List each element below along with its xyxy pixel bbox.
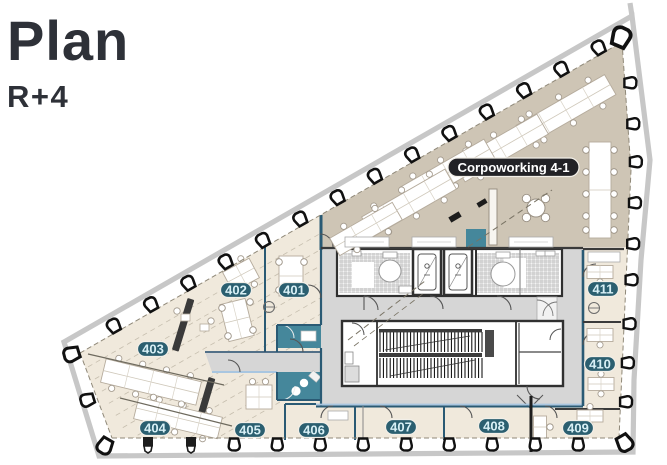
svg-text:403: 403 [142, 342, 164, 357]
svg-text:R+4: R+4 [7, 79, 69, 114]
svg-text:Plan: Plan [7, 9, 129, 72]
svg-text:411: 411 [593, 282, 614, 297]
svg-text:407: 407 [390, 420, 412, 435]
svg-text:410: 410 [589, 357, 611, 372]
svg-text:404: 404 [144, 421, 166, 436]
svg-text:Corpoworking 4-1: Corpoworking 4-1 [457, 160, 569, 175]
svg-text:408: 408 [483, 419, 505, 434]
svg-text:402: 402 [225, 283, 247, 298]
svg-text:405: 405 [239, 423, 261, 438]
svg-text:401: 401 [283, 283, 305, 298]
svg-text:406: 406 [303, 423, 325, 438]
svg-text:409: 409 [567, 421, 589, 436]
